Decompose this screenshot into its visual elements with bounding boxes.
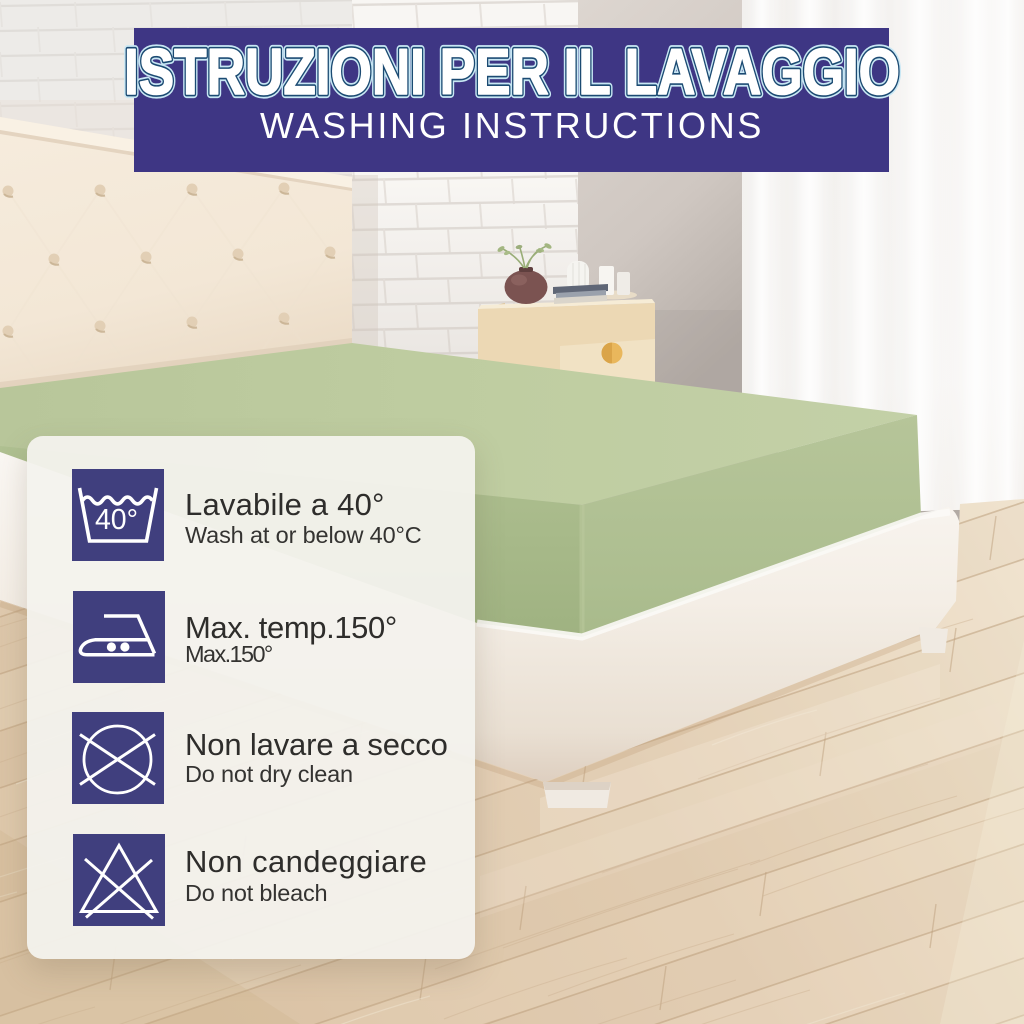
svg-text:40°: 40° bbox=[95, 504, 138, 536]
svg-text:WASHING INSTRUCTIONS: WASHING INSTRUCTIONS bbox=[260, 105, 764, 146]
svg-text:ISTRUZIONI PER IL LAVAGGIO: ISTRUZIONI PER IL LAVAGGIO bbox=[124, 35, 900, 108]
